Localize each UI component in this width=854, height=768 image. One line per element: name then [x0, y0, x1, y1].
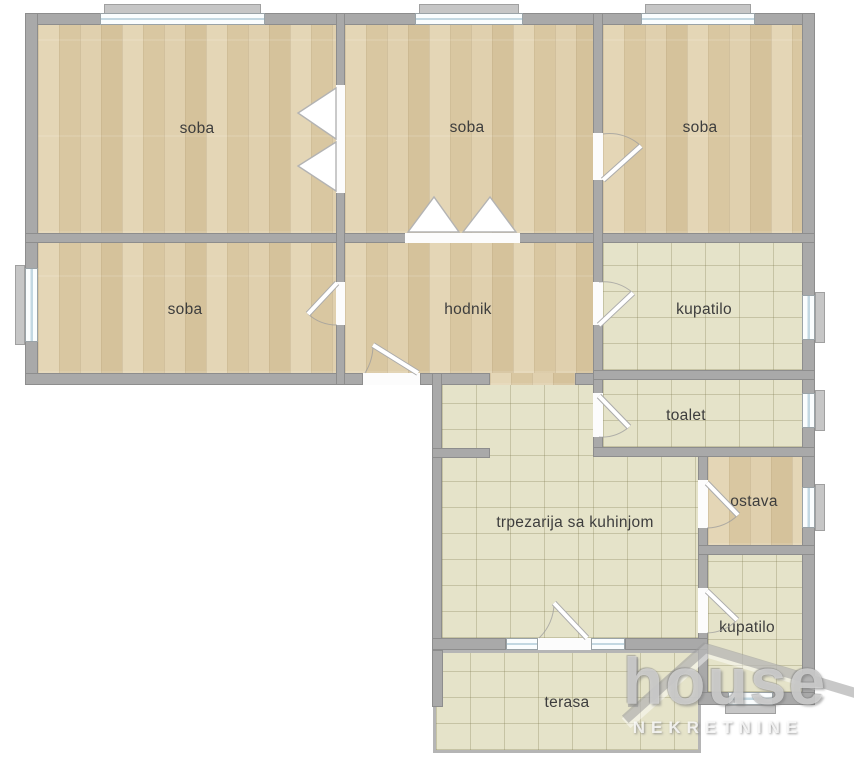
window-toalet	[802, 393, 815, 428]
wall-kupatilo1-toalet	[593, 370, 815, 380]
upper-wing-bottom-wall-mid	[420, 373, 490, 385]
hodnik-passage-floor	[490, 373, 575, 385]
wall-soba2-soba3	[593, 13, 603, 457]
floor-plan: soba soba soba soba hodnik kupatilo toal…	[0, 0, 854, 768]
room-label-kupatilo-2: kupatilo	[719, 619, 775, 637]
window-ostava	[802, 487, 815, 528]
sill-ostava	[815, 484, 825, 531]
window-soba-1	[100, 13, 265, 25]
door-gap-ostava	[698, 480, 708, 528]
room-label-soba-1: soba	[180, 120, 215, 138]
exterior-wall-right	[802, 13, 815, 705]
room-label-soba-3: soba	[683, 119, 718, 137]
window-soba-3	[641, 13, 755, 25]
door-gap-kupatilo1	[593, 282, 603, 325]
sill-soba-4	[15, 265, 25, 345]
door-gap-soba4	[336, 282, 345, 325]
window-trpezarija-left	[506, 638, 538, 650]
double-door-gap-soba1	[336, 85, 345, 193]
room-label-kupatilo-1: kupatilo	[676, 301, 732, 319]
room-label-trpezarija: trpezarija sa kuhinjom	[496, 514, 653, 532]
trpezarija-floor-right	[593, 457, 698, 638]
room-label-toalet: toalet	[666, 407, 706, 425]
room-label-soba-2: soba	[450, 119, 485, 137]
sill-kupatilo-2	[725, 705, 776, 714]
trpezarija-bottom-wall-right	[625, 638, 708, 650]
room-label-ostava: ostava	[730, 493, 777, 511]
door-gap-soba3	[593, 133, 603, 180]
trpezarija-bottom-wall-left	[432, 638, 506, 650]
terasa-left-wall-stub	[432, 650, 443, 707]
room-label-soba-4: soba	[168, 301, 203, 319]
window-kupatilo-1	[802, 295, 815, 340]
room-label-terasa: terasa	[545, 694, 590, 712]
double-door-gap-soba2	[405, 233, 520, 243]
trpezarija-left-wall	[432, 373, 442, 650]
wall-soba1-soba2	[336, 13, 345, 385]
upper-wing-bottom-wall-left	[25, 373, 363, 385]
door-gap-kupatilo2	[698, 588, 708, 633]
door-gap-toalet	[593, 393, 603, 437]
window-trpezarija-right	[591, 638, 625, 650]
sill-toalet	[815, 390, 825, 431]
trpezarija-floor-left	[442, 385, 593, 638]
sill-kupatilo-1	[815, 292, 825, 343]
room-label-hodnik: hodnik	[444, 301, 491, 319]
window-soba-2	[415, 13, 523, 25]
wall-toalet-ostava	[593, 447, 815, 457]
wall-ostava-kupatilo2	[698, 545, 815, 555]
trpezarija-partition-stub	[432, 448, 490, 458]
window-soba-4	[25, 268, 38, 342]
window-kupatilo-2	[728, 692, 773, 705]
entrance-door-gap	[363, 373, 420, 385]
terrace-door-gap	[539, 638, 591, 650]
